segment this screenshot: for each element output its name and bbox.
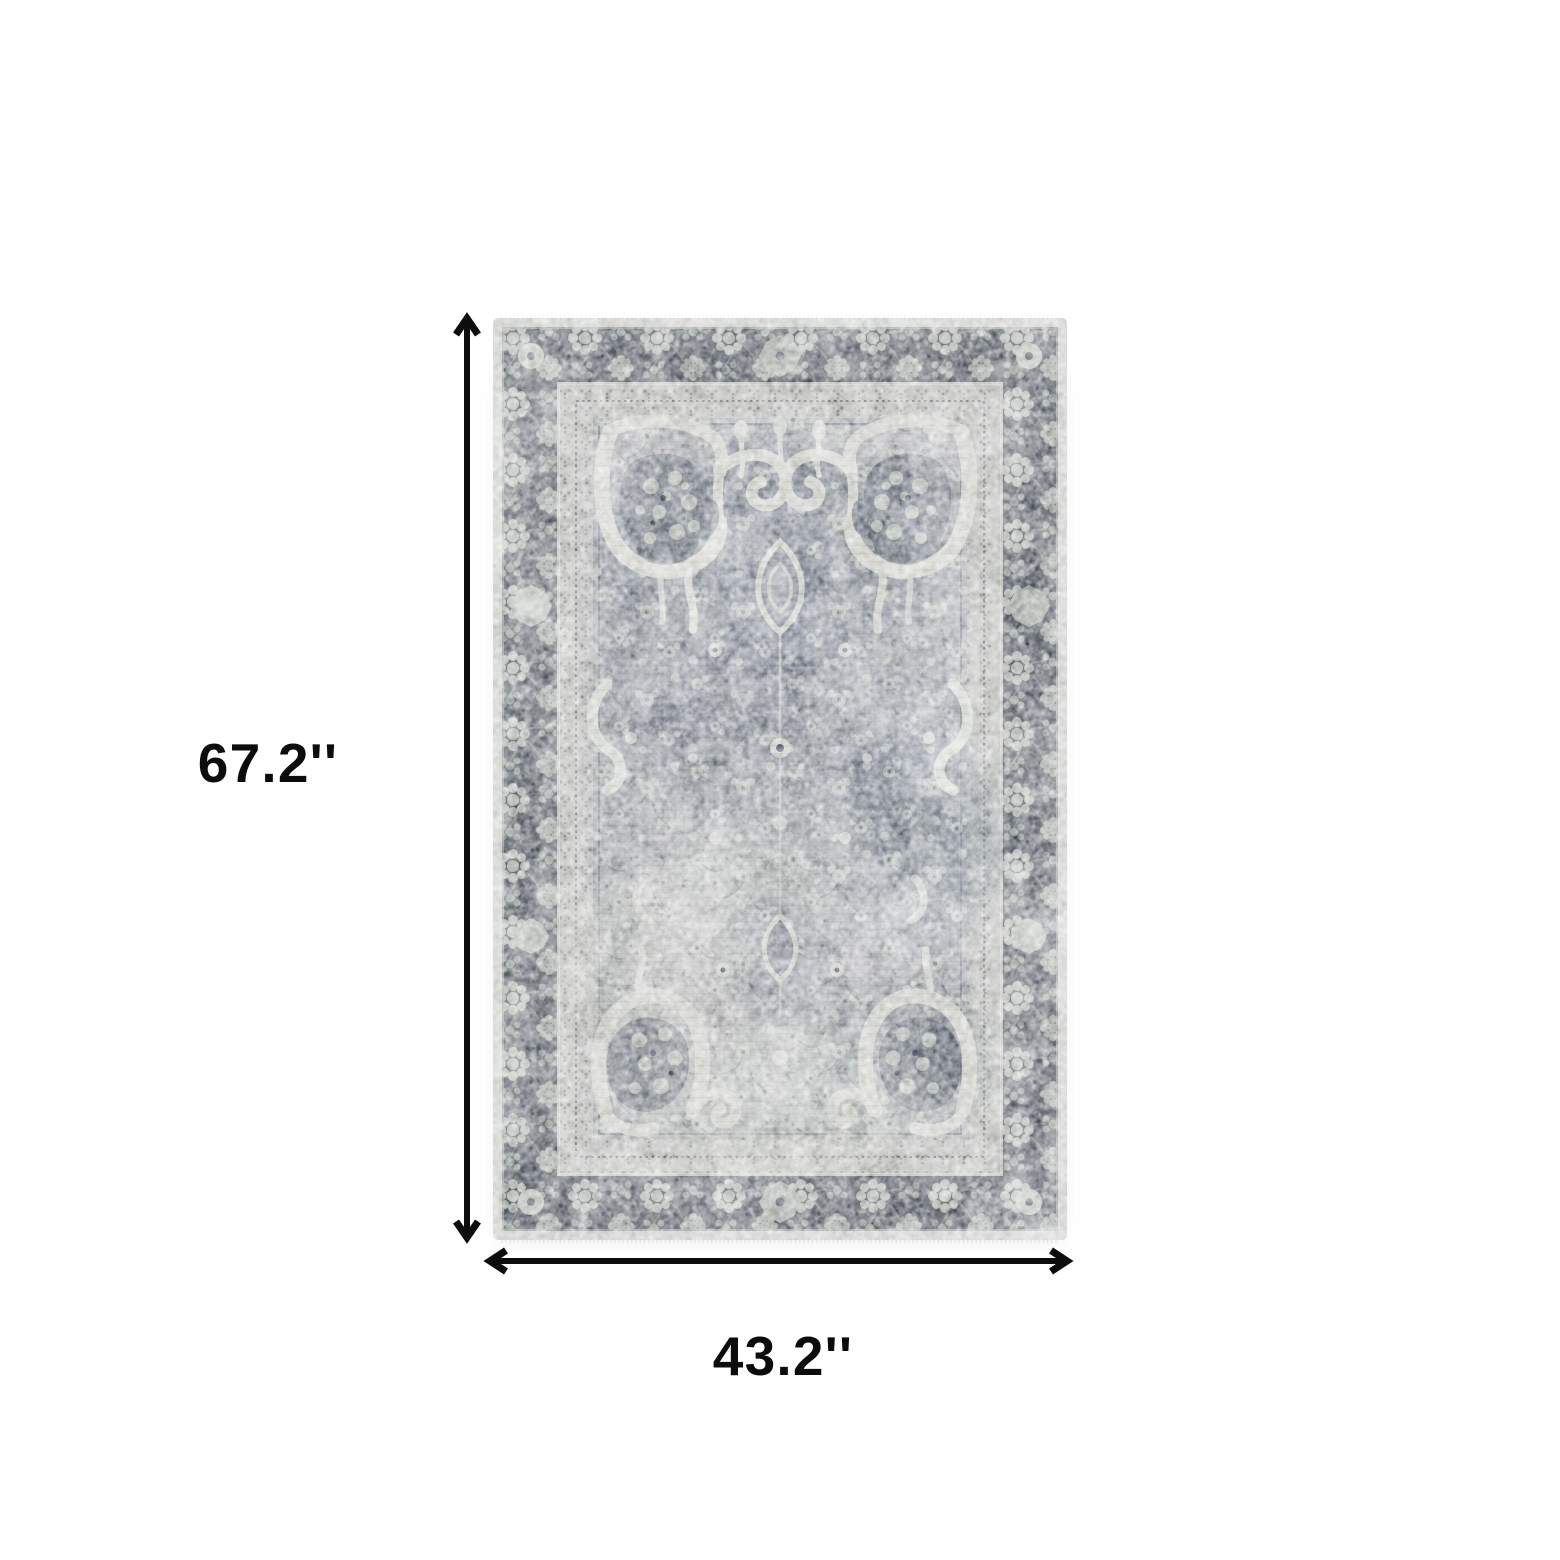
svg-text:67.2'': 67.2'' <box>198 732 338 794</box>
svg-text:43.2'': 43.2'' <box>713 1325 853 1387</box>
